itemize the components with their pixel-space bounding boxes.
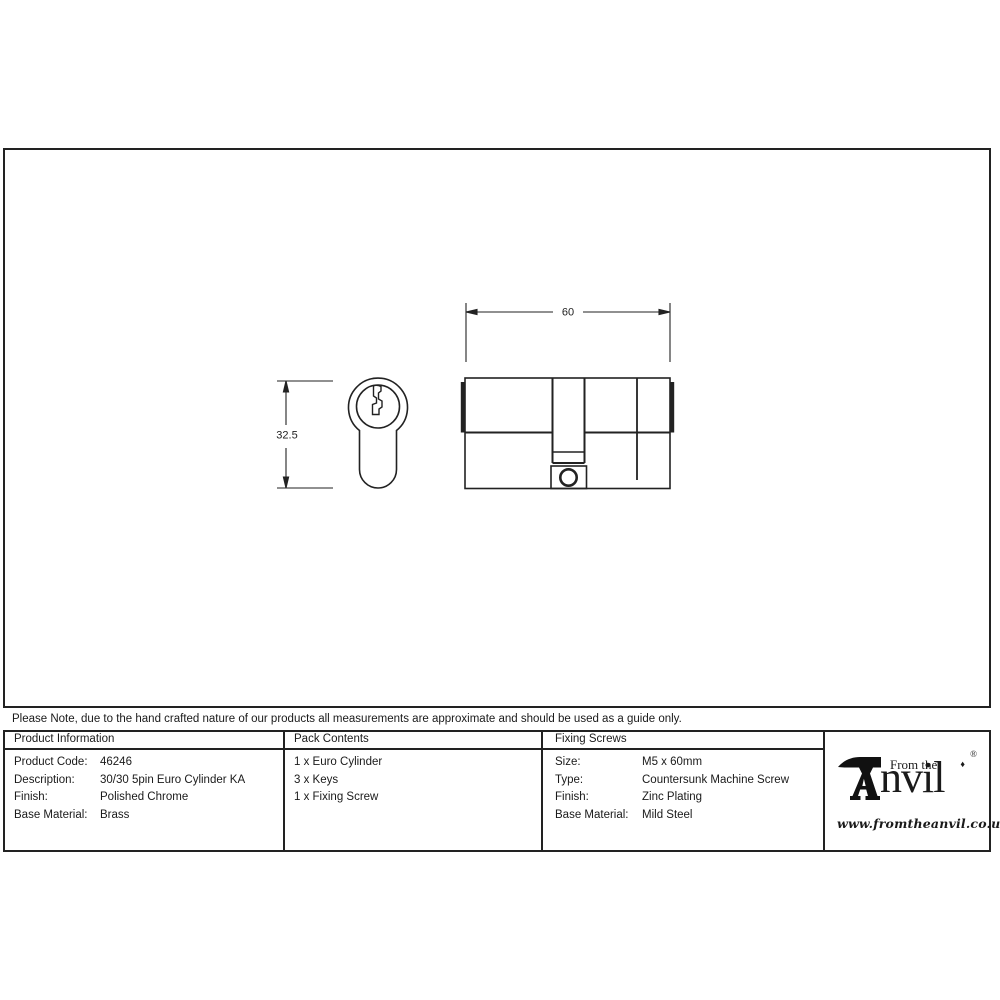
spec-label: Finish: (14, 789, 100, 807)
table-row: Type: Countersunk Machine Screw (543, 772, 823, 790)
spec-value: Mild Steel (642, 807, 693, 825)
width-dimension-label: 60 (562, 307, 574, 319)
diamond-icon: ♦ (960, 759, 965, 769)
logo-cell: From the ♦ ® nvil www.fromtheanvil.co.uk (825, 732, 989, 850)
list-item: 3 x Keys (285, 772, 541, 790)
table-row: Finish: Polished Chrome (5, 789, 283, 807)
height-dimension: 32.5 (276, 381, 333, 488)
spec-label: Base Material: (14, 807, 100, 825)
dim-arrow-up-icon (283, 381, 288, 392)
logo-brand-text: nvil (880, 755, 944, 801)
table-row: Size: M5 x 60mm (543, 754, 823, 772)
front-view (348, 378, 407, 488)
product-information-header: Product Information (5, 732, 283, 750)
spec-value: 46246 (100, 754, 132, 772)
fixing-screws-header: Fixing Screws (543, 732, 823, 750)
table-row: Description: 30/30 5pin Euro Cylinder KA (5, 772, 283, 790)
spec-value: Countersunk Machine Screw (642, 772, 789, 790)
logo-registered-mark: ® (970, 749, 977, 759)
spec-label: Type: (555, 772, 642, 790)
spec-value: Polished Chrome (100, 789, 188, 807)
note-bar: Please Note, due to the hand crafted nat… (3, 706, 991, 732)
pack-contents-section: Pack Contents 1 x Euro Cylinder 3 x Keys… (285, 732, 543, 850)
side-view (461, 378, 674, 489)
pack-contents-header: Pack Contents (285, 732, 541, 750)
spec-label: Finish: (555, 789, 642, 807)
dim-arrow-right-icon (659, 309, 670, 314)
note-text: Please Note, due to the hand crafted nat… (12, 713, 682, 725)
side-view-cam-slot (553, 378, 585, 463)
technical-drawing: 60 32.5 (0, 0, 1000, 1000)
side-view-left-end-cap (461, 382, 465, 433)
spec-label: Description: (14, 772, 100, 790)
spec-value: 30/30 5pin Euro Cylinder KA (100, 772, 245, 790)
logo-url: www.fromtheanvil.co.uk (837, 816, 977, 831)
list-item: 1 x Fixing Screw (285, 789, 541, 807)
spec-value: Zinc Plating (642, 789, 702, 807)
spec-table: Product Information Product Code: 46246 … (5, 732, 989, 850)
table-row: Product Code: 46246 (5, 754, 283, 772)
spec-value: Brass (100, 807, 129, 825)
spec-value: M5 x 60mm (642, 754, 702, 772)
table-row: Base Material: Brass (5, 807, 283, 825)
table-row: Finish: Zinc Plating (543, 789, 823, 807)
width-dimension: 60 (466, 303, 670, 362)
spec-label: Base Material: (555, 807, 642, 825)
logo: From the ♦ ® nvil www.fromtheanvil.co.uk (837, 745, 977, 837)
fixing-screw-hole (560, 469, 576, 485)
dim-arrow-left-icon (466, 309, 477, 314)
list-item: 1 x Euro Cylinder (285, 754, 541, 772)
spec-label: Size: (555, 754, 642, 772)
keyhole-icon (373, 385, 383, 414)
table-row: Base Material: Mild Steel (543, 807, 823, 825)
side-view-right-end-cap (670, 382, 674, 433)
spec-label: Product Code: (14, 754, 100, 772)
dim-arrow-down-icon (283, 477, 288, 488)
front-view-plug-circle (357, 385, 400, 428)
anvil-logo-icon (837, 753, 883, 801)
height-dimension-label: 32.5 (276, 430, 297, 442)
fixing-screws-section: Fixing Screws Size: M5 x 60mm Type: Coun… (543, 732, 825, 850)
product-information-section: Product Information Product Code: 46246 … (5, 732, 285, 850)
